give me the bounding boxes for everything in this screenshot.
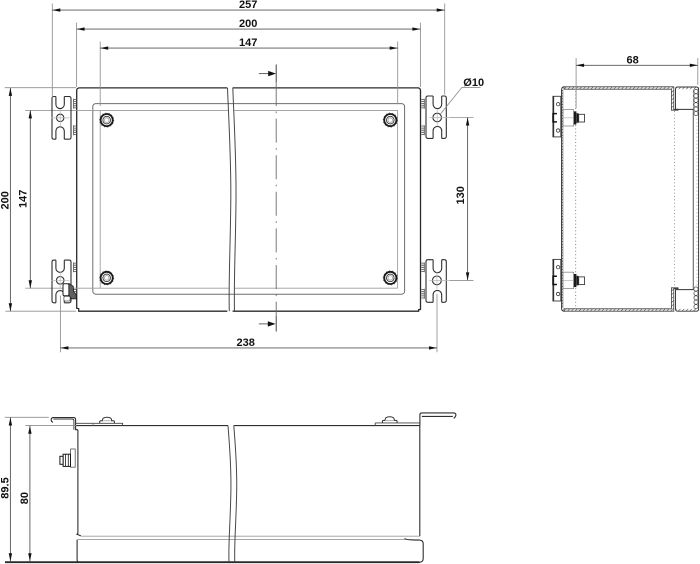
svg-text:257: 257 — [239, 0, 257, 11]
svg-text:147: 147 — [239, 37, 257, 49]
svg-text:130: 130 — [455, 186, 467, 204]
svg-text:238: 238 — [237, 337, 255, 349]
svg-text:68: 68 — [627, 54, 639, 66]
svg-text:Ø10: Ø10 — [463, 77, 484, 89]
svg-text:200: 200 — [0, 191, 12, 209]
svg-text:80: 80 — [19, 492, 31, 504]
svg-text:147: 147 — [18, 190, 30, 208]
svg-text:200: 200 — [239, 18, 257, 30]
svg-text:89.5: 89.5 — [0, 477, 12, 498]
